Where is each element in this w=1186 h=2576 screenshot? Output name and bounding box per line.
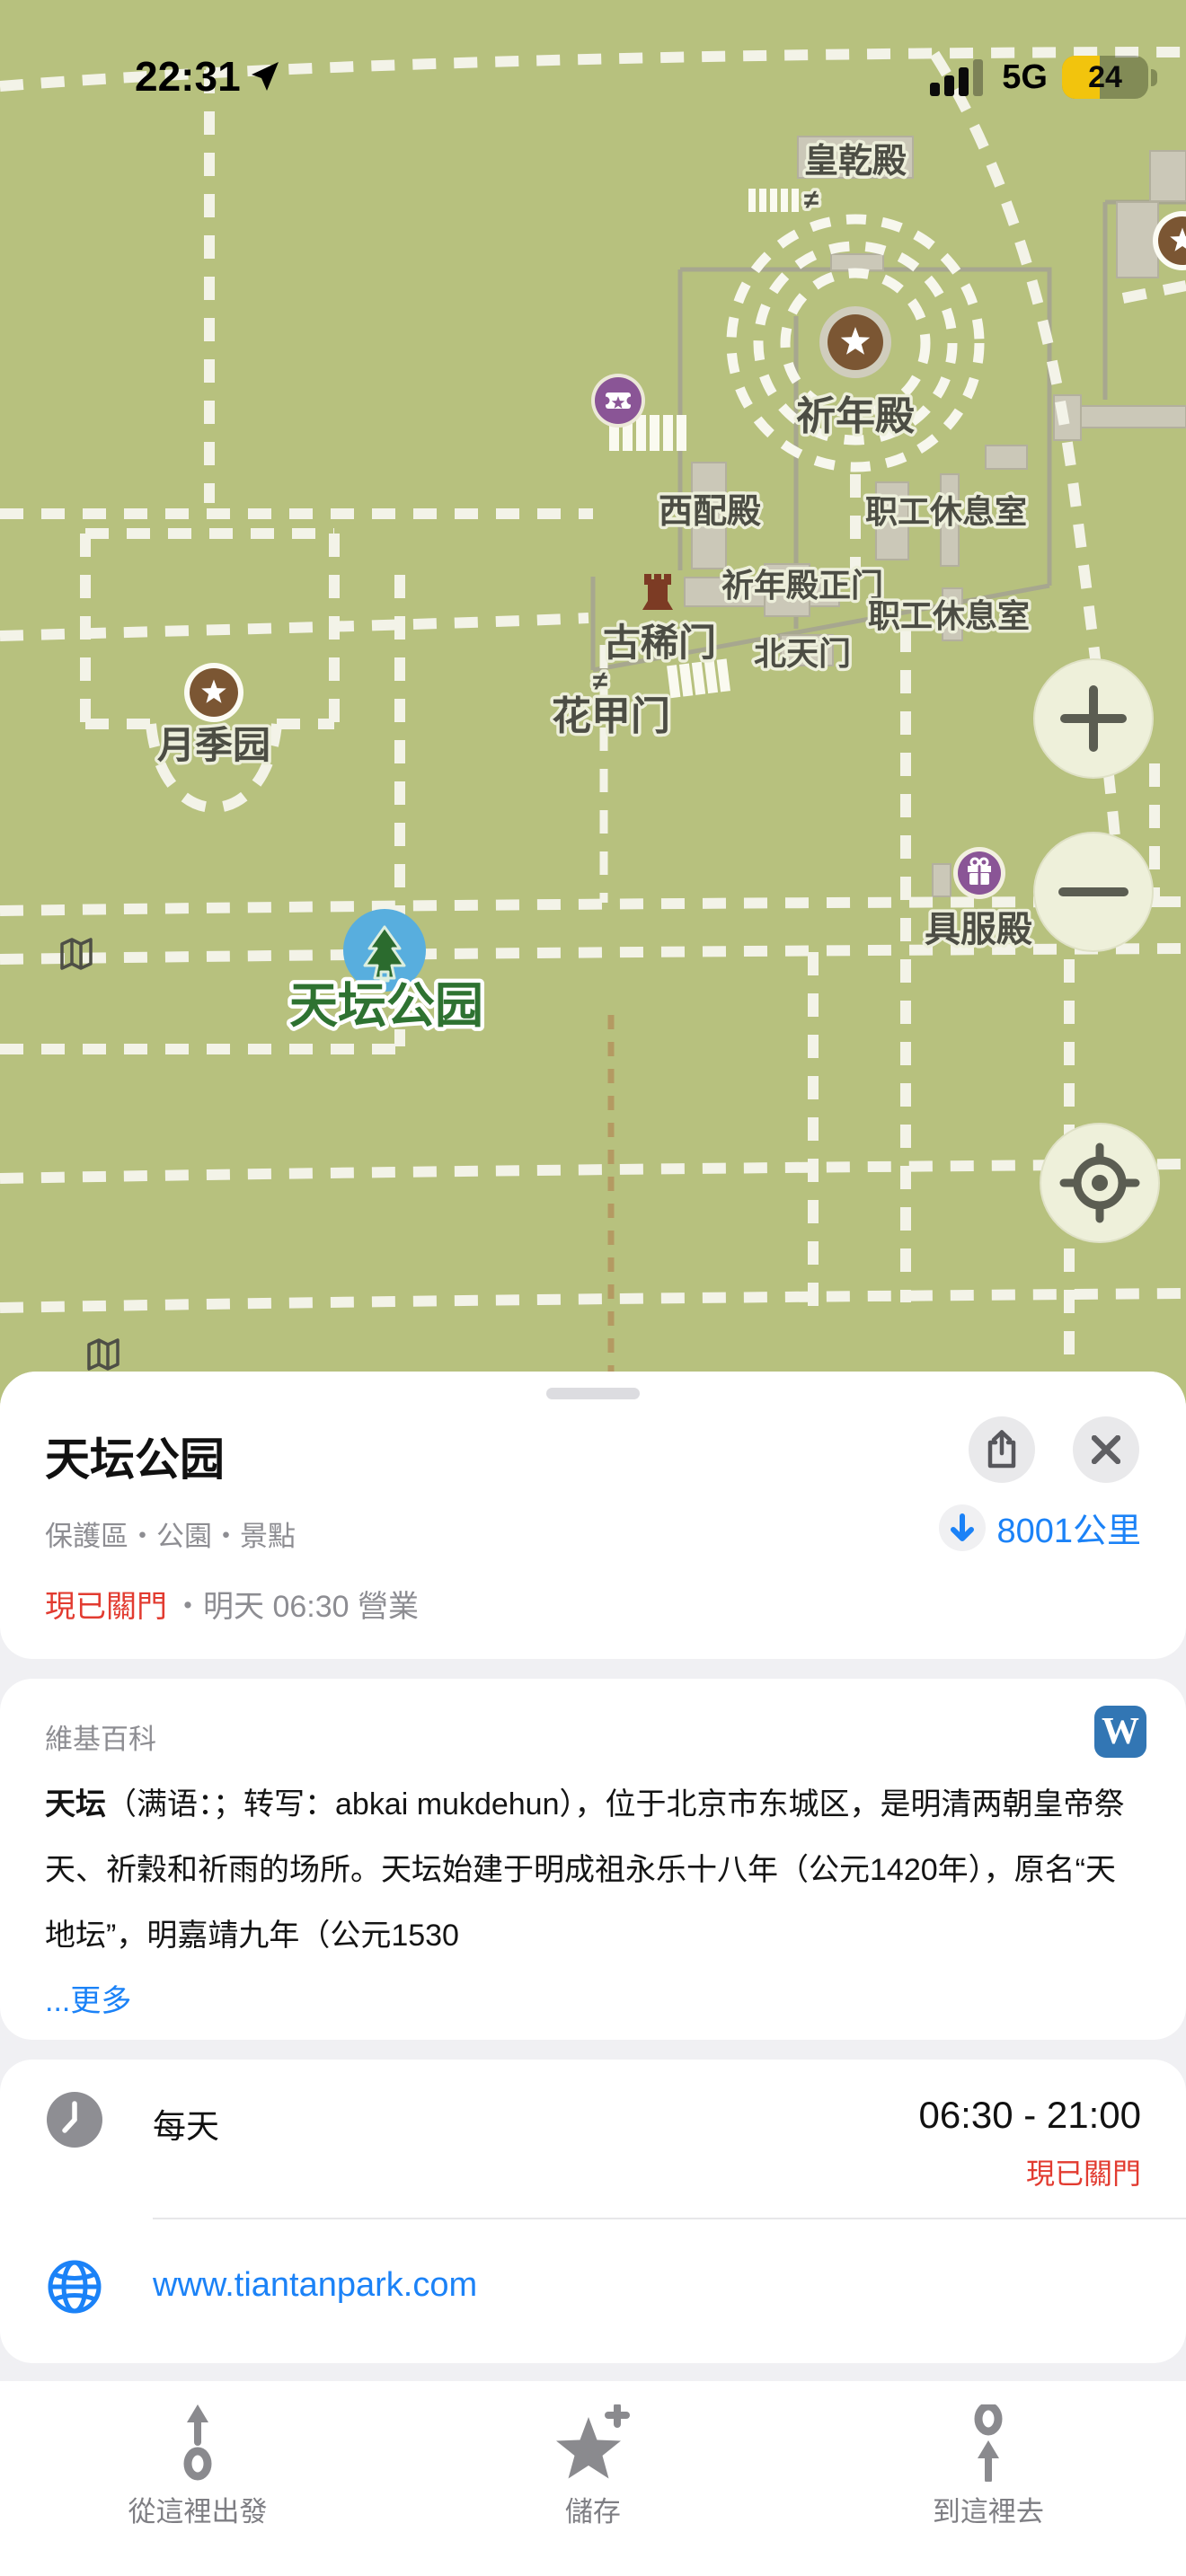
hours-day-label: 每天	[153, 2099, 219, 2148]
place-category: 保護區・公園・景點	[45, 1513, 296, 1554]
distance-arrow-icon	[950, 1513, 975, 1542]
locate-button[interactable]	[1040, 1124, 1159, 1242]
label-qiniandian: 祈年殿	[796, 394, 915, 438]
save-label: 儲存	[565, 2489, 621, 2529]
wikipedia-header: 維基百科	[45, 1716, 156, 1757]
directions-to-here-button[interactable]: 到這裡去	[791, 2404, 1186, 2576]
poi-ticket-icon[interactable]	[591, 374, 645, 428]
label-neq2: ≠	[593, 666, 608, 696]
zoom-out-button[interactable]	[1034, 833, 1153, 951]
zoom-in-button[interactable]	[1034, 659, 1153, 778]
save-star-icon	[553, 2404, 633, 2482]
label-xiuxishi1: 职工休息室	[865, 493, 1027, 530]
save-button[interactable]: 儲存	[395, 2404, 791, 2576]
directions-from-here-button[interactable]: 從這裡出發	[0, 2404, 395, 2576]
poi-star-qiniandian[interactable]	[819, 306, 891, 378]
opens-info: ・明天 06:30 營業	[173, 1590, 419, 1624]
battery-icon: 24	[1062, 56, 1148, 99]
screen: 皇乾殿 ≠ 祈年殿 西配殿 职工休息室 祈年殿正门 职工休息室 古稀门 北天门 …	[0, 0, 1186, 2576]
sheet-drag-handle[interactable]	[546, 1388, 640, 1399]
label-guximen: 古稀门	[603, 622, 716, 664]
wikipedia-extract: 天坛（满语：；转写：abkai mukdehun），位于北京市东城区，是明清两朝…	[45, 1772, 1143, 2034]
bottom-toolbar: 從這裡出發 儲存 到這裡去	[0, 2381, 1186, 2576]
place-title: 天坛公园	[45, 1424, 225, 1488]
from-here-label: 從這裡出發	[128, 2489, 267, 2529]
location-arrow-icon	[250, 61, 280, 92]
distance-value: 8001公里	[996, 1503, 1141, 1552]
share-button[interactable]	[969, 1416, 1035, 1483]
place-card-sheet: 天坛公园 保護區・公園・景點	[0, 1372, 1186, 2576]
label-park: 天坛公园	[289, 979, 483, 1033]
clock-icon	[47, 2092, 102, 2148]
label-beitianmen: 北天门	[754, 635, 851, 672]
wikipedia-card: 維基百科 W 天坛（满语：；转写：abkai mukdehun），位于北京市东城…	[0, 1679, 1186, 2040]
label-yuejiyuan: 月季园	[157, 724, 270, 766]
arrive-icon	[957, 2404, 1020, 2482]
label-jufudian: 具服殿	[925, 910, 1032, 949]
open-status-row: 現已關門・明天 06:30 營業	[45, 1582, 419, 1626]
label-huangqiandian: 皇乾殿	[804, 143, 907, 181]
to-here-label: 到這裡去	[933, 2489, 1044, 2529]
signal-bars-icon	[930, 57, 987, 97]
label-zhengmen: 祈年殿正门	[721, 567, 883, 604]
clock-time: 22:31	[135, 52, 241, 101]
wikipedia-icon: W	[1094, 1706, 1146, 1758]
poi-star-yuejiyuan[interactable]	[184, 663, 243, 722]
close-button[interactable]	[1073, 1416, 1139, 1483]
closed-status: 現已關門	[45, 1590, 167, 1624]
depart-icon	[166, 2404, 229, 2482]
globe-icon	[47, 2259, 102, 2315]
share-icon	[985, 1430, 1019, 1469]
label-xipeidian: 西配殿	[659, 493, 761, 531]
hours-closed-status: 現已關門	[918, 2151, 1141, 2192]
label-neq1: ≠	[804, 185, 819, 215]
label-xiuxishi2: 职工休息室	[868, 597, 1030, 634]
website-link[interactable]: www.tiantanpark.com	[153, 2266, 477, 2305]
place-header-card: 天坛公园 保護區・公園・景點	[0, 1372, 1186, 1659]
wiki-bold-lead: 天坛	[45, 1787, 106, 1822]
network-type: 5G	[1002, 58, 1048, 97]
close-icon	[1092, 1435, 1120, 1464]
more-link[interactable]: ...更多	[45, 1984, 131, 2018]
battery-percent: 24	[1062, 56, 1148, 99]
distance-block: 8001公里	[939, 1503, 1141, 1552]
battery-cap	[1151, 69, 1157, 86]
map-canvas[interactable]: 皇乾殿 ≠ 祈年殿 西配殿 职工休息室 祈年殿正门 职工休息室 古稀门 北天门 …	[0, 0, 1186, 1401]
poi-gift-icon[interactable]	[953, 847, 1005, 899]
hours-website-card: 每天 06:30 - 21:00 現已關門 www.tiantanpark.co…	[0, 2060, 1186, 2363]
label-huajiamen: 花甲门	[552, 694, 670, 738]
row-divider	[153, 2218, 1186, 2219]
hours-time: 06:30 - 21:00	[918, 2094, 1141, 2137]
status-bar: 22:31 5G 24	[0, 0, 1186, 119]
wiki-body-text: （满语：；转写：abkai mukdehun），位于北京市东城区，是明清两朝皇帝…	[45, 1787, 1125, 1953]
